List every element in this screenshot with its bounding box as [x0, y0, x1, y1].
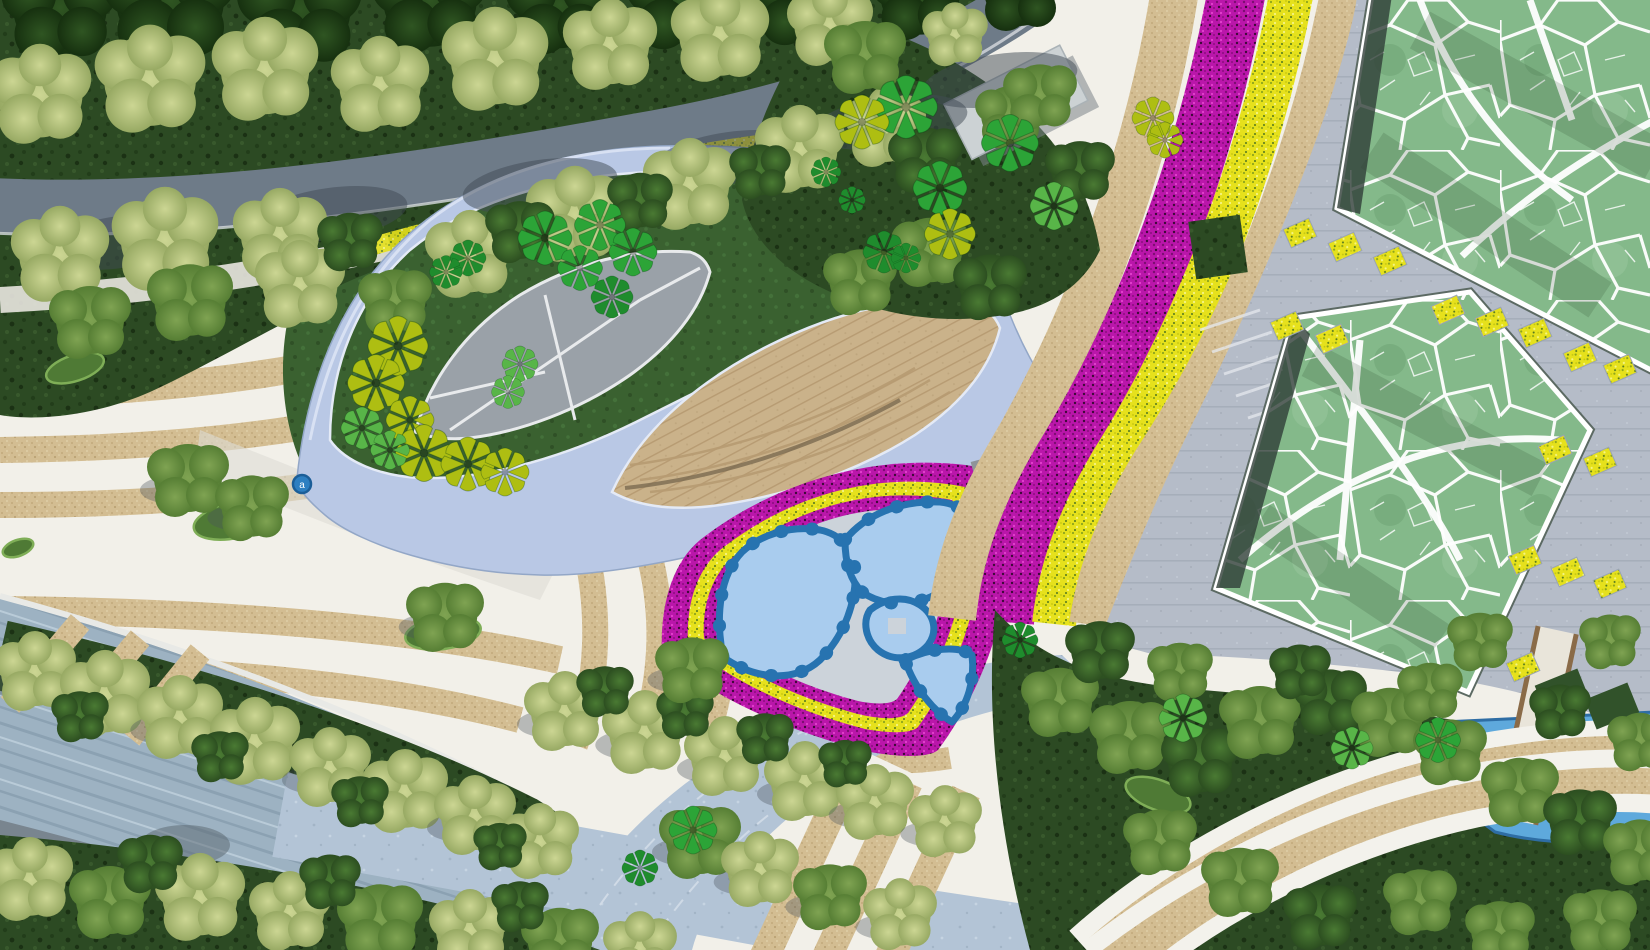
fluffy-tree-mid [406, 583, 484, 652]
fluffy-tree-mid [1147, 643, 1213, 701]
site-plan-svg: a [0, 0, 1650, 950]
fluffy-tree-light [671, 0, 769, 82]
fluffy-tree-mid [1563, 889, 1637, 950]
fluffy-tree-mid [1123, 809, 1197, 875]
pinwheel-tree-lime [835, 95, 889, 149]
pinwheel-tree-green [492, 376, 525, 409]
fluffy-tree-mid [793, 864, 867, 930]
map-marker-a[interactable]: a [293, 475, 311, 493]
fluffy-tree-dark [117, 835, 183, 893]
pinwheel-tree-bright [669, 806, 717, 854]
fluffy-tree-light [0, 837, 73, 921]
avenue-median-hedge [1188, 215, 1248, 280]
pinwheel-tree-bright [609, 228, 657, 276]
fluffy-tree-mid [655, 637, 729, 703]
pinwheel-tree-bright [982, 115, 1039, 172]
fluffy-tree-dark [1283, 884, 1357, 950]
pinwheel-tree-deep [591, 276, 633, 318]
pinwheel-tree-deep [811, 157, 841, 187]
pinwheel-tree-lime [925, 209, 976, 260]
svg-text:a: a [299, 480, 305, 491]
pinwheel-tree-green [1030, 182, 1078, 230]
fluffy-tree-dark [953, 254, 1027, 320]
pinwheel-tree-deep [622, 850, 658, 886]
pinwheel-tree-bright [1416, 718, 1461, 763]
pinwheel-tree-bright [913, 161, 967, 215]
fluffy-tree-dark [51, 691, 108, 742]
pinwheel-tree-green [1159, 694, 1207, 742]
fluffy-tree-dark [191, 731, 248, 782]
fluffy-tree-mid [49, 286, 131, 359]
pinwheel-tree-lime [481, 448, 529, 496]
fluffy-tree-mid [147, 264, 233, 341]
fluffy-tree-dark [317, 213, 383, 271]
fluffy-tree-dark [1529, 685, 1591, 740]
fluffy-tree-dark [491, 881, 548, 932]
fluffy-tree-light [563, 0, 657, 90]
fluffy-tree-mid [215, 475, 289, 541]
pinwheel-tree-lime [1147, 122, 1183, 158]
fluffy-tree-mid [1201, 848, 1279, 917]
fluffy-tree-dark [729, 145, 791, 200]
fluffy-tree-mid [1465, 901, 1535, 950]
pool-center-island [888, 618, 906, 634]
fluffy-tree-mid [1383, 869, 1457, 935]
pinwheel-tree-deep [839, 187, 866, 214]
pinwheel-tree-green [1331, 727, 1373, 769]
fluffy-tree-dark [1269, 645, 1331, 700]
fluffy-tree-dark [736, 713, 793, 764]
pinwheel-tree-deep [891, 243, 921, 273]
pinwheel-tree-deep [430, 256, 463, 289]
fluffy-tree-dark [1065, 621, 1135, 683]
fluffy-tree-mid [1089, 701, 1171, 774]
fluffy-tree-dark [818, 740, 871, 787]
fluffy-tree-dark [299, 855, 361, 910]
fluffy-tree-mid [147, 444, 229, 517]
fluffy-tree-mid [1447, 613, 1513, 671]
fluffy-tree-dark [473, 823, 526, 870]
masterplan-stage: a [0, 0, 1650, 950]
fluffy-tree-dark [576, 666, 633, 717]
pinwheel-tree-deep [1002, 622, 1038, 658]
fluffy-tree-mid [1397, 663, 1463, 721]
fluffy-tree-mid [1579, 615, 1641, 670]
fluffy-tree-dark [331, 776, 388, 827]
fluffy-tree-light [0, 44, 91, 144]
pinwheel-tree-green [371, 431, 410, 470]
